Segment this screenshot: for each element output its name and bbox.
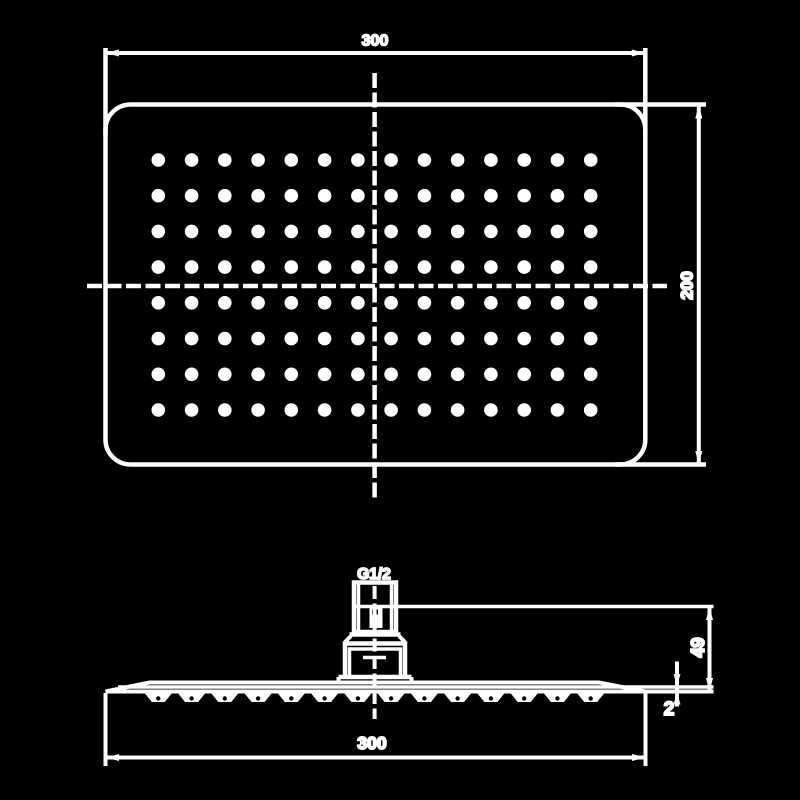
svg-text:49: 49 — [688, 637, 708, 657]
svg-text:200: 200 — [678, 271, 697, 299]
svg-text:2: 2 — [664, 699, 675, 720]
svg-text:300: 300 — [362, 33, 389, 50]
svg-text:300: 300 — [357, 733, 386, 753]
